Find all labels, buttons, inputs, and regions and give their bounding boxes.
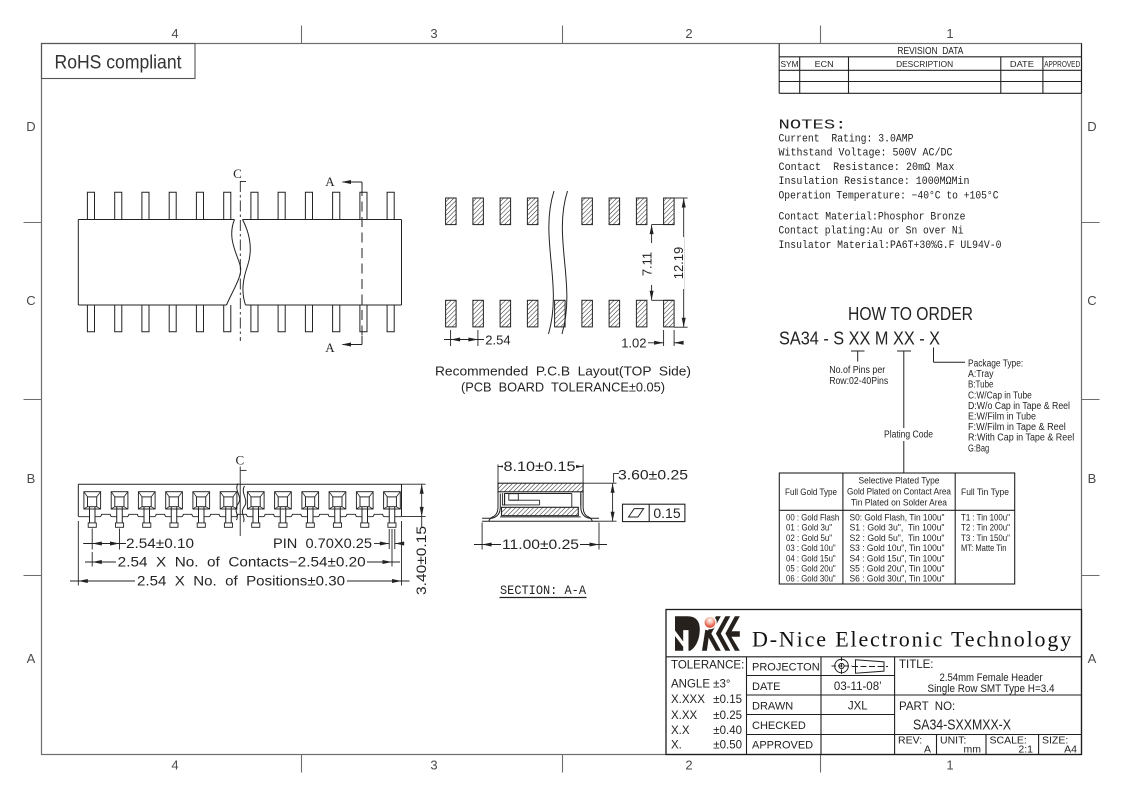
svg-text:4: 4 (171, 758, 178, 773)
svg-text:PIN 0.70X0.25: PIN 0.70X0.25 (273, 536, 372, 551)
svg-text:TOLERANCE:: TOLERANCE: (671, 660, 744, 672)
svg-text:X.X: X.X (671, 725, 690, 737)
svg-text:Full Tin Type: Full Tin Type (961, 487, 1009, 498)
svg-text:4: 4 (171, 26, 178, 41)
svg-text:PART NO:: PART NO: (899, 701, 955, 713)
svg-text:±0.15: ±0.15 (713, 694, 742, 706)
svg-text:C: C (1087, 293, 1096, 308)
svg-text:A: A (325, 340, 335, 355)
svg-text:APPROVED: APPROVED (752, 740, 813, 752)
svg-text:B: B (1088, 471, 1097, 486)
svg-text:HOW TO ORDER: HOW TO ORDER (848, 304, 973, 324)
svg-text:C:W/Cap in Tube: C:W/Cap in Tube (968, 390, 1032, 401)
svg-text:03-11-08’: 03-11-08’ (834, 681, 882, 693)
svg-text:C: C (233, 166, 242, 181)
svg-text:REVISION DATA: REVISION DATA (897, 46, 963, 57)
svg-text:7.11: 7.11 (639, 252, 654, 276)
svg-text:Operation Temperature: −40°C t: Operation Temperature: −40°C to +105°C (779, 190, 999, 202)
svg-text:C: C (235, 453, 244, 468)
svg-text:X.XXX: X.XXX (671, 694, 705, 706)
svg-text:Plating Code: Plating Code (884, 430, 933, 441)
svg-text:No.of Pins per: No.of Pins per (829, 365, 886, 376)
svg-text:PROJECTON: PROJECTON (752, 662, 820, 674)
svg-text:DATE: DATE (752, 681, 781, 693)
svg-text:±0.40: ±0.40 (713, 725, 742, 737)
svg-text:1: 1 (946, 758, 953, 773)
svg-text:3.40±0.15: 3.40±0.15 (414, 526, 429, 595)
svg-text:1.02: 1.02 (621, 336, 646, 351)
svg-text:Full Gold Type: Full Gold Type (785, 487, 837, 498)
svg-text:SA34 - S XX M XX - X: SA34 - S XX M XX - X (779, 329, 940, 349)
svg-text:Insulation Resistance: 1000MΩM: Insulation Resistance: 1000MΩMin (779, 176, 970, 188)
svg-text:A: A (325, 174, 335, 189)
svg-text:DATE: DATE (1010, 59, 1034, 69)
svg-text:D:W/o Cap in Tape & Reel: D:W/o Cap in Tape & Reel (968, 401, 1070, 412)
svg-text:2.54 X No. of Positions±0.: 2.54 X No. of Positions±0.30 (137, 574, 345, 589)
svg-text:2.54: 2.54 (485, 333, 510, 348)
svg-text:±0.50: ±0.50 (713, 740, 742, 752)
svg-text:3: 3 (430, 26, 437, 41)
svg-text:Contact Material:Phosphor Bron: Contact Material:Phosphor Bronze (779, 212, 966, 224)
svg-text:Contact plating:Au or Sn over: Contact plating:Au or Sn over Ni (779, 226, 964, 238)
svg-text:X.: X. (671, 740, 682, 752)
svg-text:A4: A4 (1064, 744, 1077, 756)
svg-text:A: A (1088, 651, 1097, 666)
svg-text:Gold Plated on Contact Area: Gold Plated on Contact Area (847, 487, 952, 498)
svg-text:SECTION: A-A: SECTION: A-A (500, 583, 586, 598)
svg-text:mm: mm (964, 744, 982, 756)
svg-text:APPROVED: APPROVED (1044, 59, 1080, 69)
svg-text:2.54±0.10: 2.54±0.10 (126, 536, 194, 551)
svg-text:R:With Cap in Tape & Reel: R:With Cap in Tape & Reel (968, 433, 1074, 444)
svg-text:DESCRIPTION: DESCRIPTION (896, 59, 953, 69)
svg-text:0.15: 0.15 (653, 505, 680, 521)
svg-text:F:W/Film in Tape & Reel: F:W/Film in Tape & Reel (968, 422, 1066, 433)
svg-text:NOTES:: NOTES: (779, 118, 847, 134)
svg-text:D-Nice Electronic Technology: D-Nice Electronic Technology (752, 627, 1073, 652)
svg-text:DRAWN: DRAWN (752, 701, 793, 713)
svg-text:S6 : Gold 30u", Tin 100u": S6 : Gold 30u", Tin 100u" (850, 574, 945, 585)
svg-text:2:1: 2:1 (1018, 744, 1033, 756)
svg-text:A: A (27, 651, 36, 666)
svg-text:D: D (26, 119, 35, 134)
svg-text:06 : Gold 30u": 06 : Gold 30u" (786, 574, 836, 585)
svg-text:RoHS compliant: RoHS compliant (55, 53, 183, 74)
svg-text:2: 2 (685, 758, 692, 773)
svg-text:Tin Plated on Solder Area: Tin Plated on Solder Area (851, 498, 948, 509)
svg-text:B:Tube: B:Tube (968, 380, 994, 391)
svg-text:G:Bag: G:Bag (968, 443, 989, 454)
svg-text:C: C (26, 293, 35, 308)
svg-text:±0.25: ±0.25 (713, 710, 742, 722)
svg-text:2: 2 (685, 26, 692, 41)
svg-text:A: A (924, 744, 931, 756)
svg-text:JXL: JXL (848, 701, 868, 713)
svg-text:11.00±0.25: 11.00±0.25 (502, 537, 579, 552)
svg-text:B: B (27, 471, 36, 486)
svg-text:Current Rating: 3.0AMP: Current Rating: 3.0AMP (779, 134, 914, 146)
svg-text:TITLE:: TITLE: (899, 659, 934, 671)
svg-text:SYM: SYM (781, 59, 799, 69)
svg-text:A:Tray: A:Tray (968, 369, 994, 380)
svg-text:X.XX: X.XX (671, 710, 698, 722)
svg-text:D: D (1087, 119, 1096, 134)
svg-text:3.60±0.25: 3.60±0.25 (618, 468, 688, 483)
svg-text:Insulator Material:PA6T+30%G.F: Insulator Material:PA6T+30%G.F UL94V-0 (779, 240, 1002, 252)
svg-text:E:W/Film in Tube: E:W/Film in Tube (968, 412, 1036, 423)
svg-text:Selective Plated Type: Selective Plated Type (859, 476, 940, 487)
svg-text:ECN: ECN (815, 59, 834, 69)
svg-text:Row:02-40Pins: Row:02-40Pins (829, 376, 888, 387)
svg-text:UNIT:: UNIT: (940, 735, 966, 747)
svg-text:1: 1 (946, 26, 953, 41)
svg-text:REV:: REV: (898, 735, 922, 747)
svg-text:SA34-SXXMXX-X: SA34-SXXMXX-X (913, 717, 1011, 734)
svg-text:3: 3 (430, 758, 437, 773)
svg-text:ANGLE ±3°: ANGLE ±3° (671, 679, 731, 691)
svg-text:2.54 X No. of Contacts−2.5: 2.54 X No. of Contacts−2.54±0.20 (118, 555, 366, 570)
svg-text:Single Row SMT Type H=3.4: Single Row SMT Type H=3.4 (928, 683, 1055, 695)
svg-text:Recommended P.C.B Layout(TOP: Recommended P.C.B Layout(TOP Side) (435, 364, 691, 379)
svg-text:Contact Resistance: 20mΩ Max: Contact Resistance: 20mΩ Max (779, 162, 955, 174)
svg-text:12.19: 12.19 (671, 247, 686, 280)
svg-text:Package Type:: Package Type: (968, 359, 1023, 370)
svg-text:CHECKED: CHECKED (752, 720, 806, 732)
svg-text:MT: Matte Tin: MT: Matte Tin (961, 543, 1007, 554)
svg-text:8.10±0.15: 8.10±0.15 (504, 459, 576, 474)
svg-text:(PCB BOARD TOLERANCE±0.05): (PCB BOARD TOLERANCE±0.05) (461, 380, 665, 395)
svg-text:Withstand Voltage: 500V AC/DC: Withstand Voltage: 500V AC/DC (779, 148, 953, 160)
